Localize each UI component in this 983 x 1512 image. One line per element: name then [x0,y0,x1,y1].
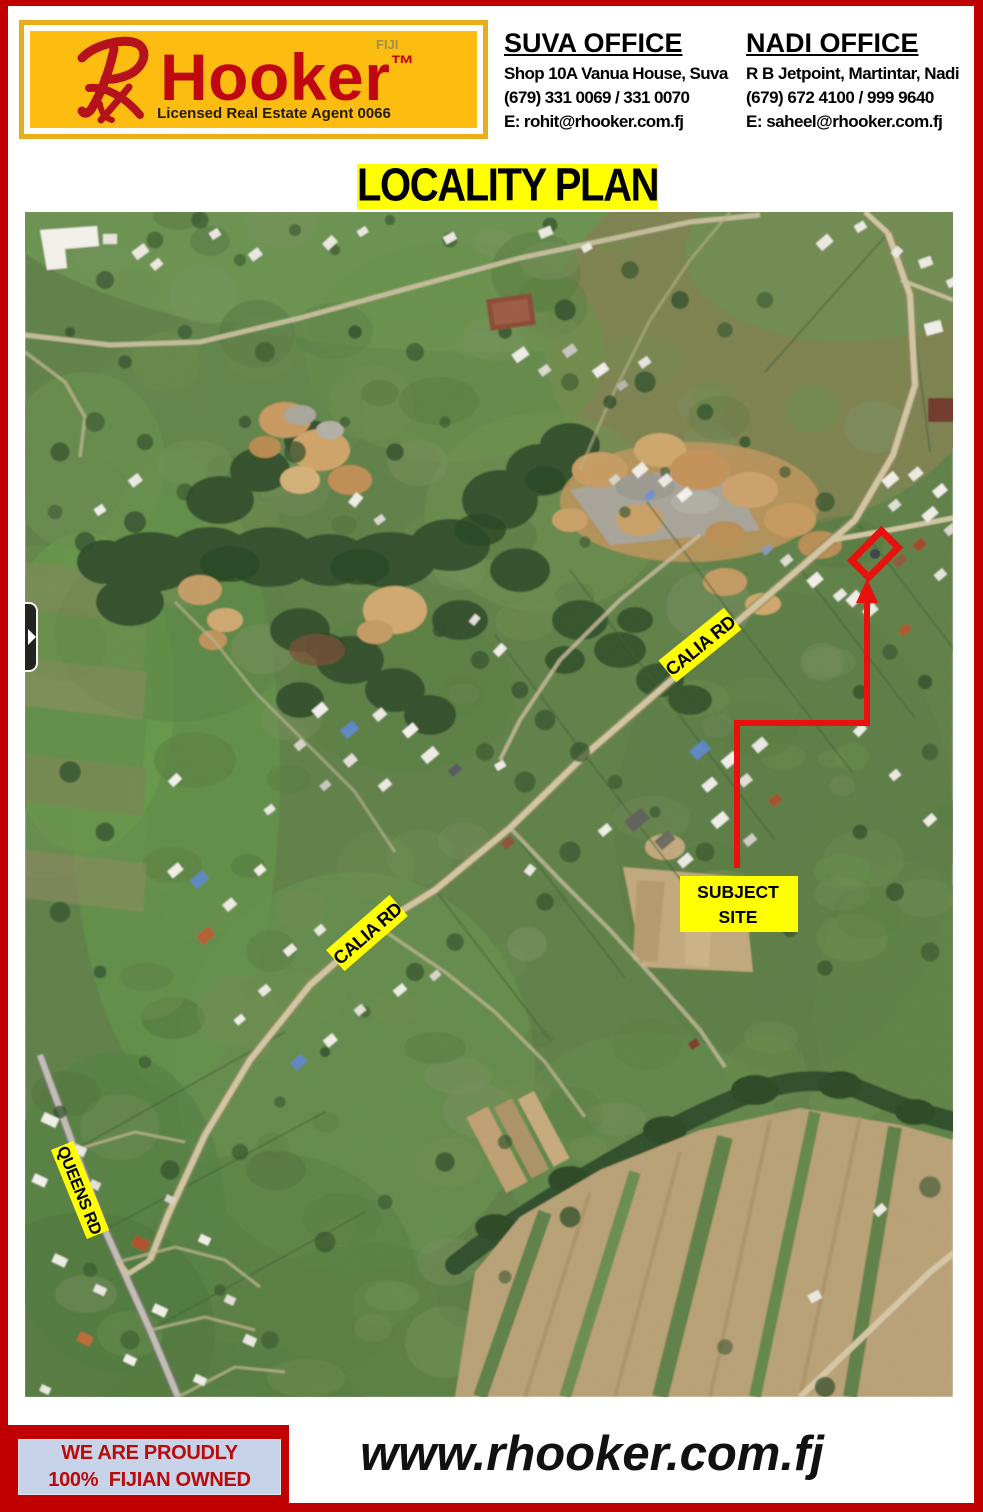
svg-text:SITE: SITE [719,907,758,927]
svg-text:SUBJECT: SUBJECT [697,882,779,902]
